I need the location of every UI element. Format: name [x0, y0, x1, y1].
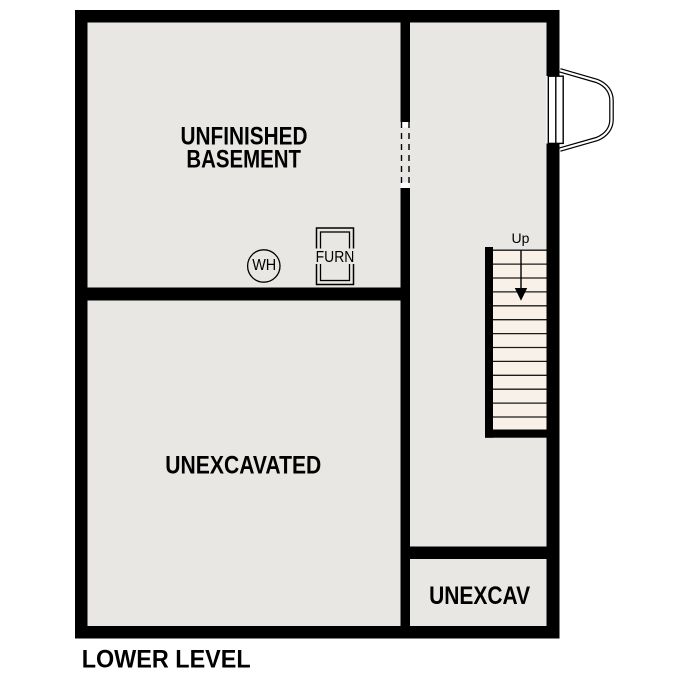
svg-text:BASEMENT: BASEMENT [186, 146, 301, 174]
svg-text:Up: Up [512, 230, 530, 246]
svg-text:FURN: FURN [316, 249, 355, 266]
svg-text:WH: WH [252, 257, 276, 274]
svg-text:UNEXCAV: UNEXCAV [429, 582, 530, 610]
svg-text:LOWER LEVEL: LOWER LEVEL [82, 646, 251, 674]
svg-text:UNEXCAVATED: UNEXCAVATED [165, 452, 321, 480]
